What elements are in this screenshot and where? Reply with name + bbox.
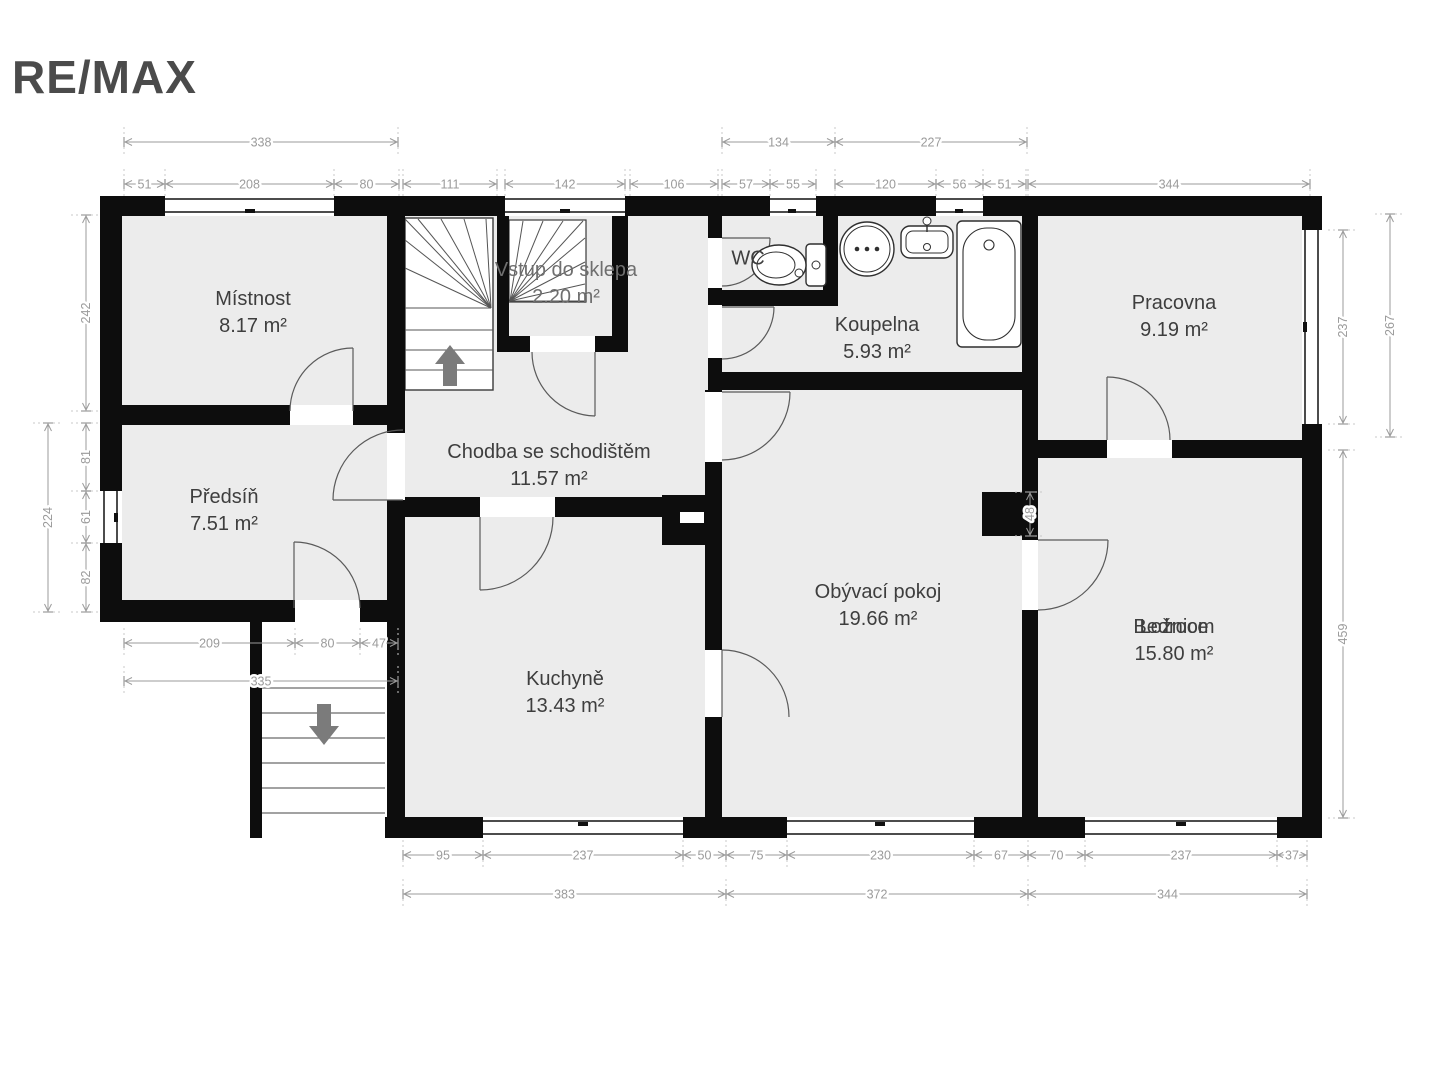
room-area: 15.80 m² bbox=[1094, 641, 1254, 668]
room-label-pracovna: Pracovna 9.19 m² bbox=[1132, 290, 1217, 344]
room-area: 19.66 m² bbox=[815, 606, 942, 633]
dimension: 57 bbox=[722, 169, 770, 199]
svg-text:106: 106 bbox=[664, 178, 685, 192]
svg-text:344: 344 bbox=[1157, 888, 1178, 902]
svg-text:50: 50 bbox=[698, 849, 712, 863]
chimney-flue bbox=[680, 512, 704, 523]
staircase-up bbox=[405, 218, 493, 390]
dimension: 67 bbox=[974, 840, 1028, 870]
dimension: 237 bbox=[1085, 840, 1277, 870]
room-name: Koupelna bbox=[835, 312, 920, 339]
window bbox=[100, 491, 122, 543]
bathtub-icon bbox=[957, 221, 1021, 347]
svg-text:81: 81 bbox=[79, 450, 93, 464]
room-area: 13.43 m² bbox=[526, 693, 605, 720]
dimension: 344 bbox=[1028, 879, 1307, 909]
dimension: 338 bbox=[124, 127, 398, 157]
dimension: 224 bbox=[33, 423, 63, 612]
chimney bbox=[982, 492, 1022, 536]
svg-text:51: 51 bbox=[998, 178, 1012, 192]
dimension: 81 bbox=[71, 423, 101, 491]
svg-text:61: 61 bbox=[79, 510, 93, 524]
svg-text:459: 459 bbox=[1336, 624, 1350, 645]
svg-text:230: 230 bbox=[870, 849, 891, 863]
window bbox=[165, 196, 334, 216]
dimension: 242 bbox=[71, 215, 101, 411]
window bbox=[1085, 817, 1277, 838]
dimension: 227 bbox=[835, 127, 1027, 157]
svg-text:57: 57 bbox=[739, 178, 753, 192]
svg-text:56: 56 bbox=[953, 178, 967, 192]
dimension: 230 bbox=[787, 840, 974, 870]
room-area: 11.57 m² bbox=[447, 466, 650, 493]
window bbox=[505, 196, 625, 216]
svg-text:82: 82 bbox=[79, 571, 93, 585]
svg-text:80: 80 bbox=[360, 178, 374, 192]
svg-text:134: 134 bbox=[768, 136, 789, 150]
svg-text:67: 67 bbox=[994, 849, 1008, 863]
room-area: 9.19 m² bbox=[1132, 317, 1217, 344]
window bbox=[1302, 230, 1322, 424]
dimension: 237 bbox=[1328, 230, 1358, 424]
svg-text:237: 237 bbox=[1336, 317, 1350, 338]
svg-text:111: 111 bbox=[440, 178, 459, 192]
dimension: 459 bbox=[1328, 450, 1358, 818]
window bbox=[483, 817, 683, 838]
svg-text:224: 224 bbox=[41, 507, 55, 528]
dimension: 95 bbox=[403, 840, 483, 870]
dimension: 55 bbox=[770, 169, 816, 199]
svg-text:75: 75 bbox=[750, 849, 764, 863]
svg-text:338: 338 bbox=[251, 136, 272, 150]
dimension: 142 bbox=[505, 169, 625, 199]
dimension: 50 bbox=[683, 840, 726, 870]
window bbox=[936, 196, 983, 216]
svg-text:227: 227 bbox=[921, 136, 942, 150]
svg-text:242: 242 bbox=[79, 303, 93, 324]
dimension: 208 bbox=[165, 169, 334, 199]
dimension: 70 bbox=[1028, 840, 1085, 870]
dimension: 56 bbox=[936, 169, 983, 199]
room-label-chodba: Chodba se schodištěm 11.57 m² bbox=[447, 439, 650, 493]
svg-text:142: 142 bbox=[555, 178, 576, 192]
svg-text:208: 208 bbox=[239, 178, 260, 192]
room-area: 5.93 m² bbox=[835, 339, 920, 366]
svg-text:383: 383 bbox=[554, 888, 575, 902]
room-name: Pracovna bbox=[1132, 290, 1217, 317]
room-label-kuchyne: Kuchyně 13.43 m² bbox=[526, 666, 605, 720]
floor-plan-page: RE/MAX bbox=[0, 0, 1431, 1080]
dimension: 61 bbox=[71, 491, 101, 543]
room-floor-predsin bbox=[122, 425, 405, 602]
room-label-loznice: Bedroom Ložnice 15.80 m² bbox=[1094, 614, 1254, 668]
svg-text:80: 80 bbox=[321, 637, 335, 651]
window bbox=[770, 196, 816, 216]
dimension: 106 bbox=[630, 169, 718, 199]
dimension: 344 bbox=[1028, 169, 1310, 199]
dimension: 209 bbox=[124, 628, 295, 658]
dimension: 37 bbox=[1277, 840, 1307, 870]
svg-text:120: 120 bbox=[875, 178, 896, 192]
svg-text:335: 335 bbox=[251, 675, 272, 689]
svg-text:55: 55 bbox=[786, 178, 800, 192]
svg-text:37: 37 bbox=[1285, 849, 1299, 863]
room-name: Místnost bbox=[215, 286, 291, 313]
room-label-mistnost: Místnost 8.17 m² bbox=[215, 286, 291, 340]
room-name-overlapped: Bedroom Ložnice bbox=[1094, 614, 1254, 641]
dimension: 383 bbox=[403, 879, 726, 909]
washing-machine-icon bbox=[840, 222, 894, 276]
room-name: Chodba se schodištěm bbox=[447, 439, 650, 466]
room-name: Obývací pokoj bbox=[815, 579, 942, 606]
exterior-stairs bbox=[262, 688, 385, 813]
dimension: 80 bbox=[334, 169, 399, 199]
floor-plan-drawing: 3381342275120880111142106575512056513442… bbox=[0, 0, 1431, 1080]
room-label-vstup-do-sklepa: Vstup do sklepa 2.20 m² bbox=[495, 257, 637, 311]
dimension: 51 bbox=[983, 169, 1026, 199]
svg-text:344: 344 bbox=[1159, 178, 1180, 192]
room-name: WC bbox=[731, 245, 764, 272]
dimension: 372 bbox=[726, 879, 1028, 909]
room-label-wc: WC bbox=[731, 245, 764, 272]
dimension: 267 bbox=[1375, 214, 1405, 437]
svg-text:47: 47 bbox=[372, 637, 386, 651]
dimension: 80 bbox=[295, 628, 360, 658]
room-area: 2.20 m² bbox=[495, 284, 637, 311]
room-area: 8.17 m² bbox=[215, 313, 291, 340]
room-label-predsin: Předsíň 7.51 m² bbox=[190, 484, 259, 538]
svg-text:209: 209 bbox=[199, 637, 220, 651]
window bbox=[787, 817, 974, 838]
dimension: 237 bbox=[483, 840, 683, 870]
svg-text:70: 70 bbox=[1050, 849, 1064, 863]
room-label-obyvaci-pokoj: Obývací pokoj 19.66 m² bbox=[815, 579, 942, 633]
room-area: 7.51 m² bbox=[190, 511, 259, 538]
room-name: Vstup do sklepa bbox=[495, 257, 637, 284]
svg-text:372: 372 bbox=[867, 888, 888, 902]
room-name: Předsíň bbox=[190, 484, 259, 511]
down-arrow-icon bbox=[309, 704, 339, 745]
svg-text:237: 237 bbox=[1171, 849, 1192, 863]
svg-text:95: 95 bbox=[436, 849, 450, 863]
dimension: 51 bbox=[124, 169, 165, 199]
dimension: 120 bbox=[835, 169, 936, 199]
dimension: 111 bbox=[403, 169, 497, 199]
dimension: 134 bbox=[722, 127, 835, 157]
room-label-koupelna: Koupelna 5.93 m² bbox=[835, 312, 920, 366]
dimension: 75 bbox=[726, 840, 787, 870]
svg-text:237: 237 bbox=[573, 849, 594, 863]
dimension: 82 bbox=[71, 543, 101, 612]
svg-text:51: 51 bbox=[138, 178, 152, 192]
svg-text:267: 267 bbox=[1383, 315, 1397, 336]
svg-text:48: 48 bbox=[1023, 507, 1037, 521]
room-name: Kuchyně bbox=[526, 666, 605, 693]
